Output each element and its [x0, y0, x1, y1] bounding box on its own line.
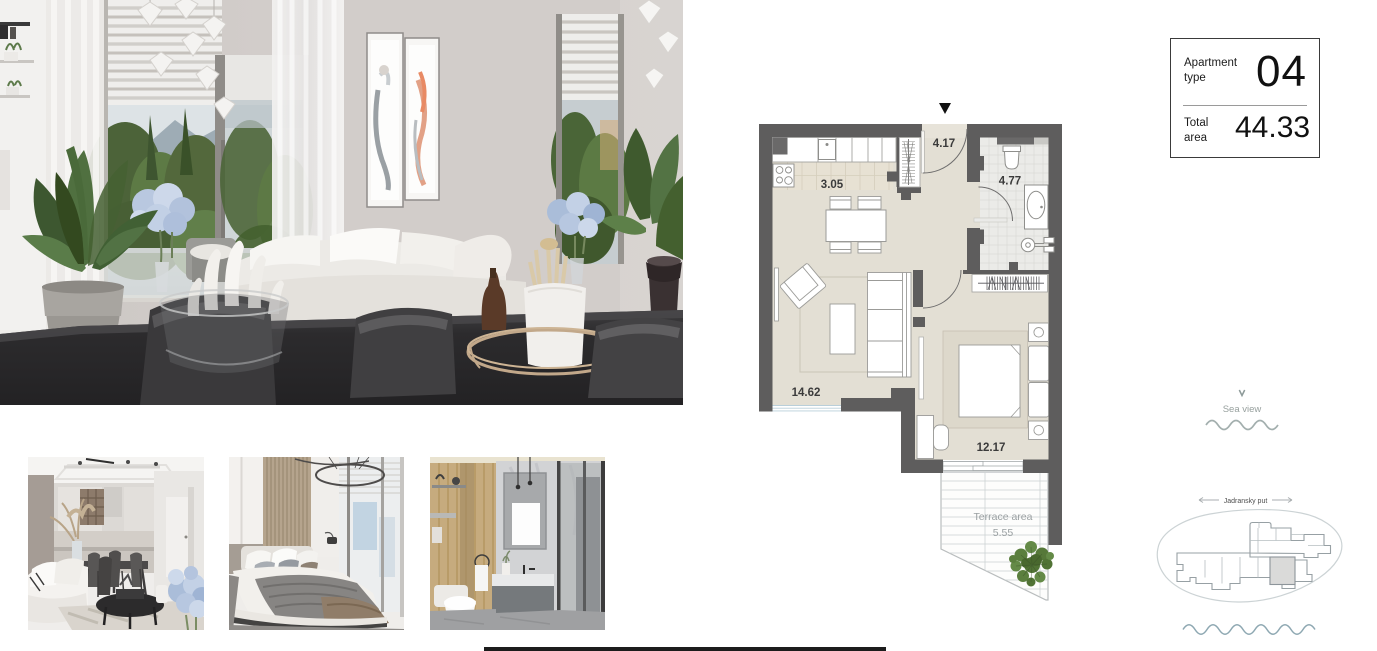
svg-text:4.17: 4.17	[933, 138, 955, 150]
svg-text:Terrace area: Terrace area	[974, 511, 1033, 523]
svg-text:Sea view: Sea view	[1223, 404, 1262, 415]
svg-text:14.62: 14.62	[792, 387, 821, 399]
svg-text:5.55: 5.55	[993, 527, 1014, 539]
svg-text:3.05: 3.05	[821, 179, 844, 191]
svg-text:Jadransky put: Jadransky put	[1224, 498, 1268, 505]
svg-text:4.77: 4.77	[999, 176, 1021, 188]
svg-text:12.17: 12.17	[977, 442, 1006, 454]
